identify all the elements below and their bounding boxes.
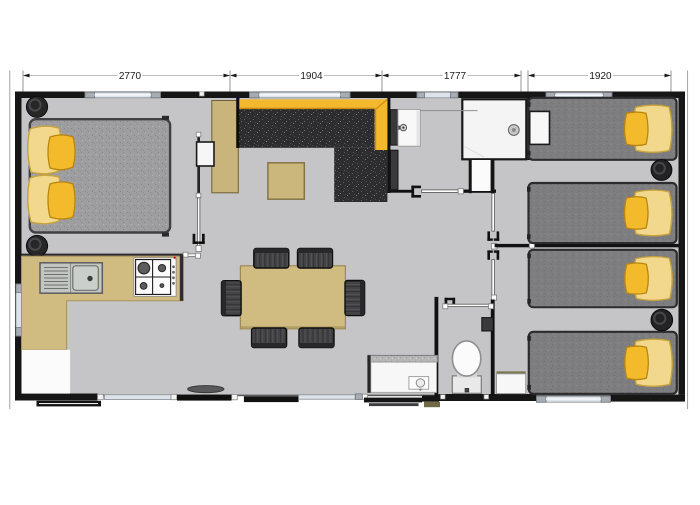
svg-text:2770: 2770 xyxy=(119,71,142,82)
svg-text:1920: 1920 xyxy=(589,71,612,82)
svg-text:1904: 1904 xyxy=(300,71,323,82)
svg-text:1777: 1777 xyxy=(444,71,467,82)
